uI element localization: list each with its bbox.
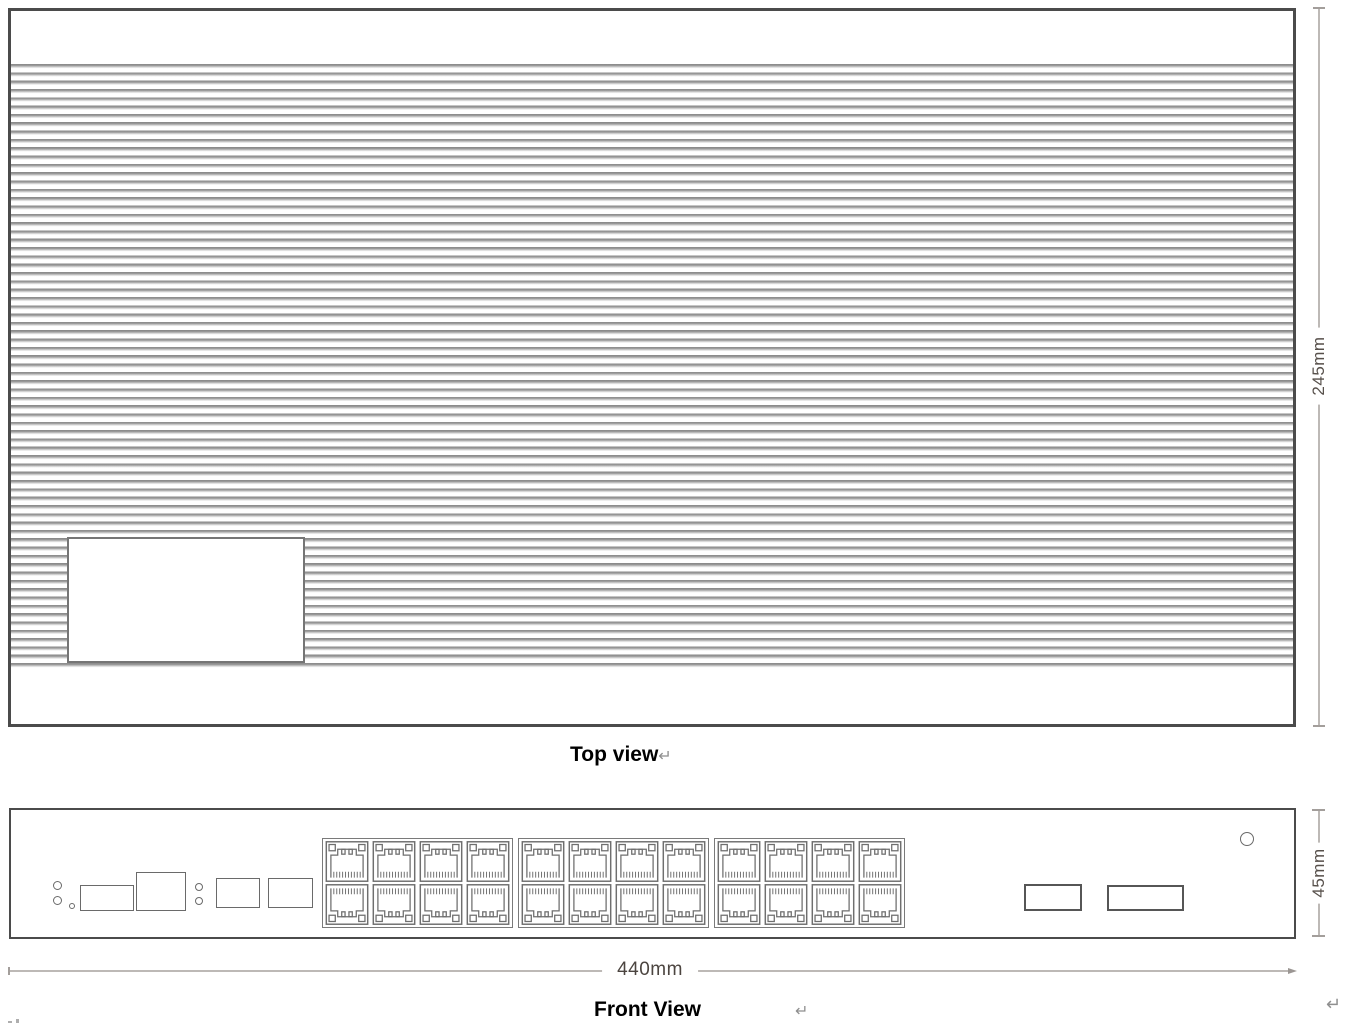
rj45-port [811,884,855,925]
rj45-port [325,884,369,925]
top-view-drawing [8,8,1296,727]
led-indicator [195,883,203,891]
rj45-port [325,841,369,882]
dimension-tick [1312,935,1325,937]
top-view-height-dimension-label: 245mm [1307,327,1331,404]
management-port [136,872,186,911]
rj45-port [811,841,855,882]
paragraph-mark-icon: ↵ [658,748,671,765]
console-port [80,885,134,911]
page-edge-artifact [8,1019,22,1024]
front-view-height-dimension-label: 45mm [1307,842,1331,903]
rj45-port [717,841,761,882]
dimension-tick [8,967,10,975]
rj45-port [568,841,612,882]
front-view-caption: Front View [594,998,701,1022]
rj45-port-bank [714,838,905,928]
rj45-port [521,841,565,882]
rj45-port [858,884,902,925]
rj45-port [764,884,808,925]
rj45-port [466,841,510,882]
dimension-tick [1312,809,1325,811]
led-indicator [53,881,62,890]
power-inlet-slot [1024,884,1082,911]
rj45-port [615,884,659,925]
front-view-drawing [9,808,1296,939]
rj45-port [662,884,706,925]
rj45-port [858,841,902,882]
power-led [1240,832,1254,846]
rj45-port-bank [322,838,513,928]
front-view-caption-text: Front View [594,998,701,1021]
rj45-port [521,884,565,925]
rj45-port [662,841,706,882]
dimension-arrow [1288,968,1297,974]
rj45-port [466,884,510,925]
front-view-width-dimension-label: 440mm [602,959,698,981]
rj45-port [568,884,612,925]
rj45-port [372,884,416,925]
dimension-tick [1313,725,1325,727]
rj45-port [717,884,761,925]
sfp-slot [216,878,260,908]
reset-button [69,903,75,909]
led-indicator [195,897,203,905]
top-view-caption: Top view↵ [570,743,672,767]
rj45-port [419,884,463,925]
led-indicator [53,896,62,905]
rj45-port [372,841,416,882]
paragraph-mark-icon: ↵ [795,1001,808,1021]
rj45-port-bank [518,838,709,928]
dimension-tick [1313,7,1325,9]
rj45-port [615,841,659,882]
rj45-port [419,841,463,882]
power-inlet-slot [1107,885,1184,911]
top-view-caption-text: Top view [570,743,658,766]
sfp-slot [268,878,313,908]
paragraph-mark-icon: ↵ [1326,994,1341,1015]
rj45-port [764,841,808,882]
label-plate [67,537,305,663]
